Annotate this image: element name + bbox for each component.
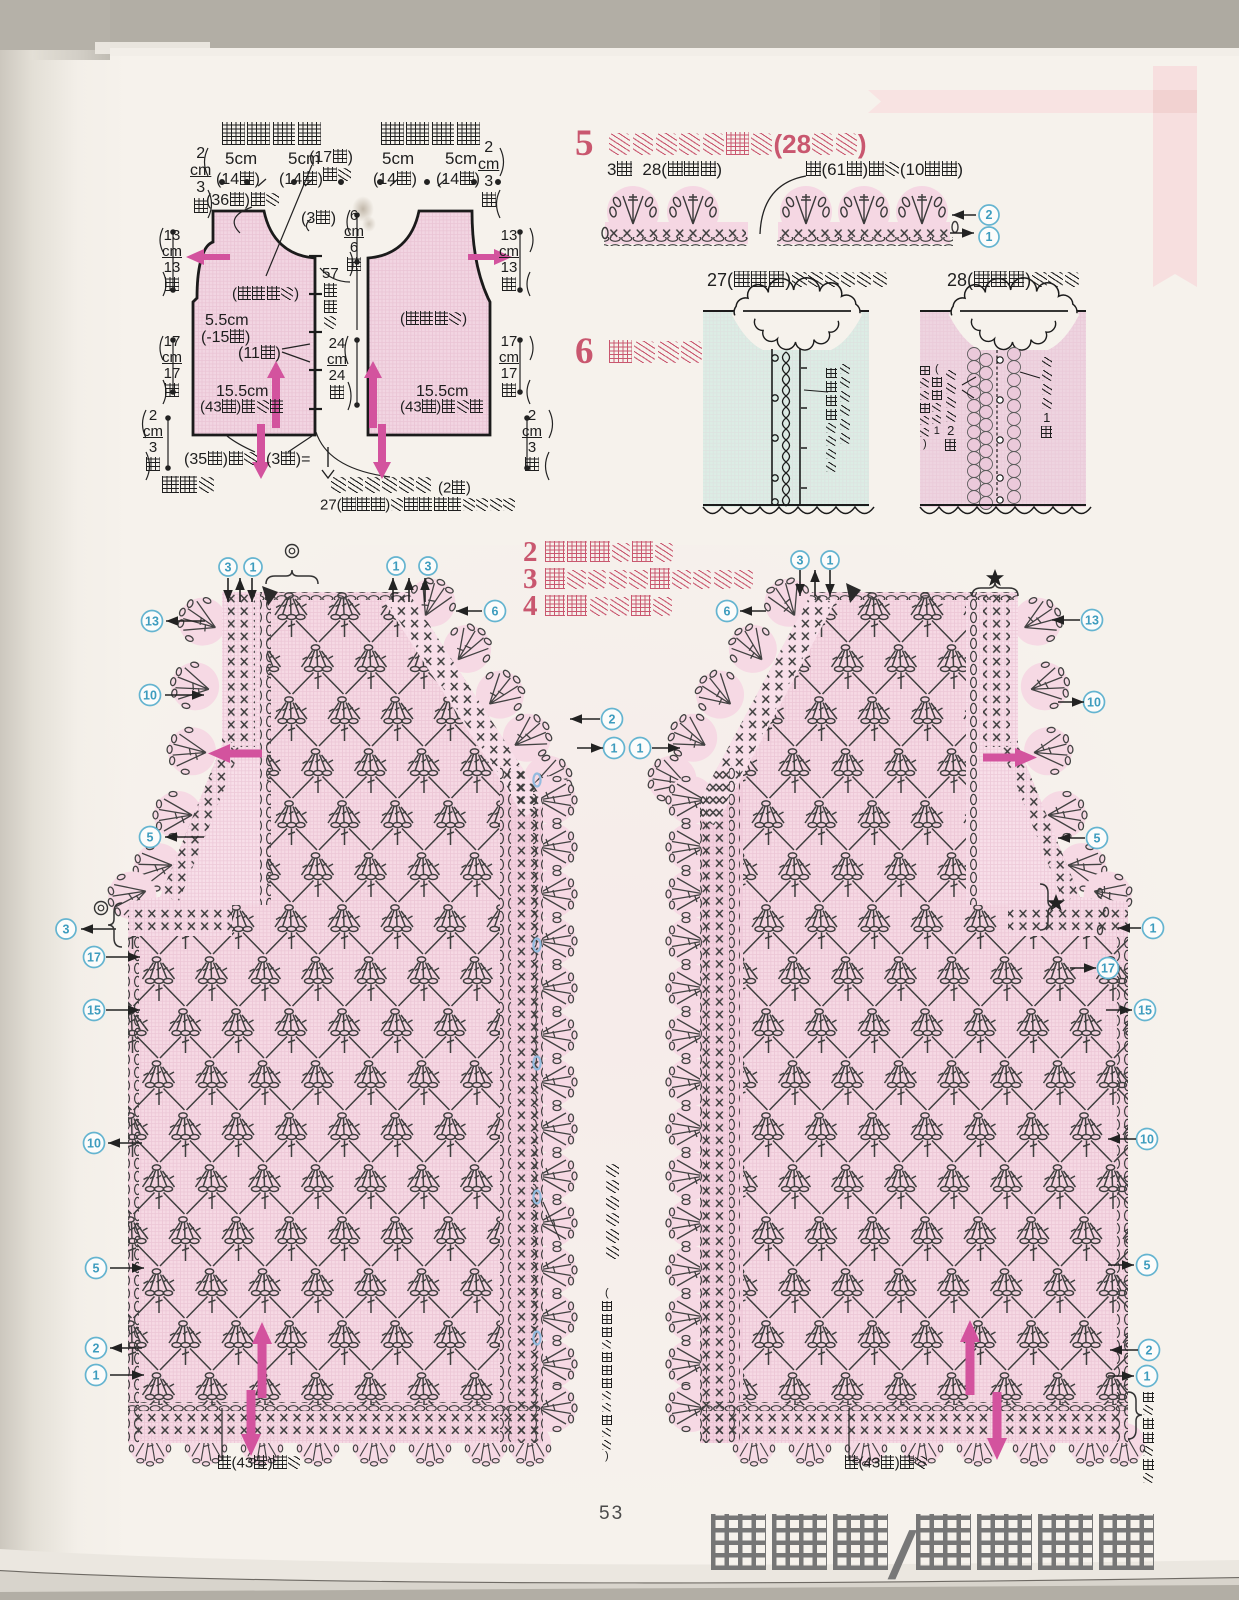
svg-text:2: 2	[93, 1341, 100, 1355]
svg-text:3: 3	[425, 559, 432, 573]
svg-text:13: 13	[145, 614, 159, 628]
svg-text:15: 15	[87, 1003, 101, 1017]
svg-text:10: 10	[87, 1136, 101, 1150]
svg-text:2: 2	[1146, 1343, 1153, 1357]
svg-text:10: 10	[143, 688, 157, 702]
svg-text:2: 2	[986, 208, 993, 222]
svg-text:17: 17	[87, 950, 101, 964]
svg-text:3: 3	[225, 560, 232, 574]
svg-text:5: 5	[147, 830, 154, 844]
svg-text:1: 1	[986, 230, 993, 244]
svg-text:1: 1	[250, 560, 257, 574]
svg-text:1: 1	[1144, 1369, 1151, 1383]
svg-text:1: 1	[1150, 921, 1157, 935]
svg-text:5: 5	[1094, 831, 1101, 845]
svg-text:3: 3	[63, 922, 70, 936]
svg-text:1: 1	[393, 559, 400, 573]
svg-text:10: 10	[1140, 1132, 1154, 1146]
svg-text:10: 10	[1087, 695, 1101, 709]
svg-text:17: 17	[1101, 961, 1115, 975]
svg-text:5: 5	[93, 1261, 100, 1275]
svg-text:5: 5	[1144, 1258, 1151, 1272]
svg-text:1: 1	[93, 1368, 100, 1382]
svg-text:6: 6	[724, 604, 731, 618]
svg-text:1: 1	[827, 553, 834, 567]
svg-text:13: 13	[1085, 613, 1099, 627]
svg-text:1: 1	[611, 741, 618, 755]
svg-text:15: 15	[1138, 1003, 1152, 1017]
svg-text:2: 2	[609, 712, 616, 726]
svg-text:3: 3	[797, 553, 804, 567]
svg-text:6: 6	[492, 604, 499, 618]
svg-text:1: 1	[637, 741, 644, 755]
